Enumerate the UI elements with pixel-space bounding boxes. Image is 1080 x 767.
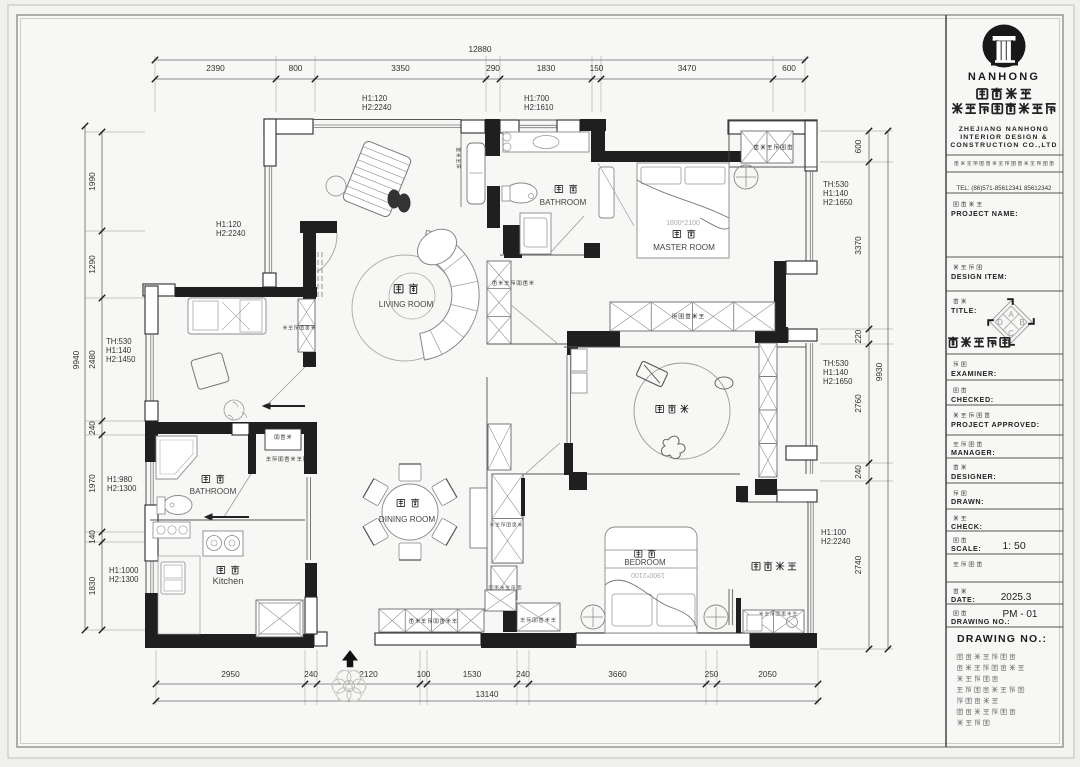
svg-text:CONSTRUCTION CO.,LTD: CONSTRUCTION CO.,LTD	[950, 142, 1057, 149]
svg-text:TH:530: TH:530	[823, 180, 849, 189]
svg-text:H1:1000: H1:1000	[109, 566, 139, 575]
svg-text:140: 140	[87, 530, 97, 544]
svg-text:TEL: (86)571-85612341 8561: TEL: (86)571-85612341 85612342	[957, 185, 1053, 192]
svg-text:1830: 1830	[87, 576, 97, 595]
svg-text:TH:530: TH:530	[823, 359, 849, 368]
svg-text:CHECKED:: CHECKED:	[951, 395, 994, 404]
svg-text:ZHEJIANG NANHONG: ZHEJIANG NANHONG	[959, 126, 1050, 133]
svg-text:600: 600	[782, 63, 796, 73]
svg-text:3660: 3660	[608, 669, 627, 679]
svg-text:290: 290	[486, 63, 500, 73]
svg-text:2480: 2480	[87, 350, 97, 369]
svg-text:100: 100	[417, 669, 431, 679]
svg-text:2760: 2760	[853, 394, 863, 413]
svg-text:SCALE:: SCALE:	[951, 544, 981, 553]
svg-text:INTERIOR DESIGN &: INTERIOR DESIGN &	[960, 134, 1048, 141]
svg-text:DESIGN ITEM:: DESIGN ITEM:	[951, 272, 1007, 281]
svg-text:H2:2240: H2:2240	[362, 103, 392, 112]
svg-text:1970: 1970	[87, 474, 97, 493]
svg-text:1800*2100: 1800*2100	[666, 220, 700, 227]
svg-text:3470: 3470	[678, 63, 697, 73]
svg-text:DATE:: DATE:	[951, 595, 975, 604]
svg-text:H2:1650: H2:1650	[823, 377, 853, 386]
svg-text:H1:700: H1:700	[524, 94, 550, 103]
svg-text:240: 240	[87, 421, 97, 435]
svg-text:BEDROOM: BEDROOM	[624, 558, 666, 567]
svg-text:BATHROOM: BATHROOM	[540, 198, 587, 207]
svg-text:H2:1610: H2:1610	[524, 103, 554, 112]
svg-text:PROJECT APPROVED:: PROJECT APPROVED:	[951, 420, 1040, 429]
svg-text:1: 50: 1: 50	[1002, 540, 1026, 552]
svg-text:1830: 1830	[537, 63, 556, 73]
svg-text:3350: 3350	[391, 63, 410, 73]
svg-text:H2:2240: H2:2240	[216, 229, 246, 238]
svg-text:1530: 1530	[463, 669, 482, 679]
svg-text:240: 240	[853, 465, 863, 479]
svg-text:H2:1450: H2:1450	[106, 355, 136, 364]
svg-text:MANAGER:: MANAGER:	[951, 448, 995, 457]
svg-text:C: C	[1008, 329, 1014, 338]
svg-text:600: 600	[853, 139, 863, 153]
svg-text:BATHROOM: BATHROOM	[190, 487, 237, 496]
svg-text:9940: 9940	[71, 350, 81, 369]
svg-text:H2:1300: H2:1300	[107, 484, 137, 493]
svg-text:H1:980: H1:980	[107, 475, 133, 484]
svg-text:DRAWING NO.:: DRAWING NO.:	[957, 633, 1047, 645]
svg-text:H1:140: H1:140	[823, 189, 849, 198]
svg-text:2740: 2740	[853, 555, 863, 574]
svg-text:CHECK:: CHECK:	[951, 522, 983, 531]
svg-text:H1:120: H1:120	[216, 220, 242, 229]
svg-text:B: B	[1019, 318, 1024, 327]
svg-text:250: 250	[705, 669, 719, 679]
svg-text:EXAMINER:: EXAMINER:	[951, 369, 997, 378]
svg-text:H2:1650: H2:1650	[823, 198, 853, 207]
svg-text:MASTER ROOM: MASTER ROOM	[653, 243, 715, 252]
svg-text:NANHONG: NANHONG	[968, 71, 1040, 83]
svg-text:9930: 9930	[874, 362, 884, 381]
svg-text:TH:530: TH:530	[106, 337, 132, 346]
svg-text:H2:2240: H2:2240	[821, 537, 851, 546]
svg-text:3370: 3370	[853, 236, 863, 255]
svg-text:240: 240	[516, 669, 530, 679]
svg-text:1900*2100: 1900*2100	[631, 571, 665, 578]
svg-text:Kitchen: Kitchen	[213, 576, 244, 586]
svg-text:DRAWING NO.:: DRAWING NO.:	[951, 617, 1010, 626]
svg-text:1990: 1990	[87, 172, 97, 191]
svg-text:2025.3: 2025.3	[1001, 592, 1032, 603]
svg-text:2950: 2950	[221, 669, 240, 679]
svg-text:220: 220	[853, 329, 863, 343]
svg-text:DESIGNER:: DESIGNER:	[951, 472, 996, 481]
svg-text:DINING ROOM: DINING ROOM	[379, 515, 436, 524]
svg-text:12880: 12880	[468, 44, 491, 54]
svg-text:2390: 2390	[206, 63, 225, 73]
svg-text:A: A	[1008, 310, 1014, 319]
svg-text:H1:140: H1:140	[106, 346, 132, 355]
svg-text:150: 150	[590, 63, 604, 73]
svg-text:H1:120: H1:120	[362, 94, 388, 103]
svg-text:D: D	[997, 318, 1003, 327]
svg-text:PM - 01: PM - 01	[1002, 609, 1037, 620]
svg-text:LIVING ROOM: LIVING ROOM	[379, 300, 434, 309]
svg-text:800: 800	[289, 63, 303, 73]
svg-text:1290: 1290	[87, 255, 97, 274]
svg-text:H1:100: H1:100	[821, 528, 847, 537]
svg-text:H1:140: H1:140	[823, 368, 849, 377]
svg-text:2050: 2050	[758, 669, 777, 679]
svg-text:TITLE:: TITLE:	[951, 306, 977, 315]
svg-text:240: 240	[304, 669, 318, 679]
svg-text:PROJECT NAME:: PROJECT NAME:	[951, 209, 1018, 218]
svg-text:H2:1300: H2:1300	[109, 575, 139, 584]
svg-text:DRAWN:: DRAWN:	[951, 497, 984, 506]
svg-text:13140: 13140	[475, 689, 498, 699]
